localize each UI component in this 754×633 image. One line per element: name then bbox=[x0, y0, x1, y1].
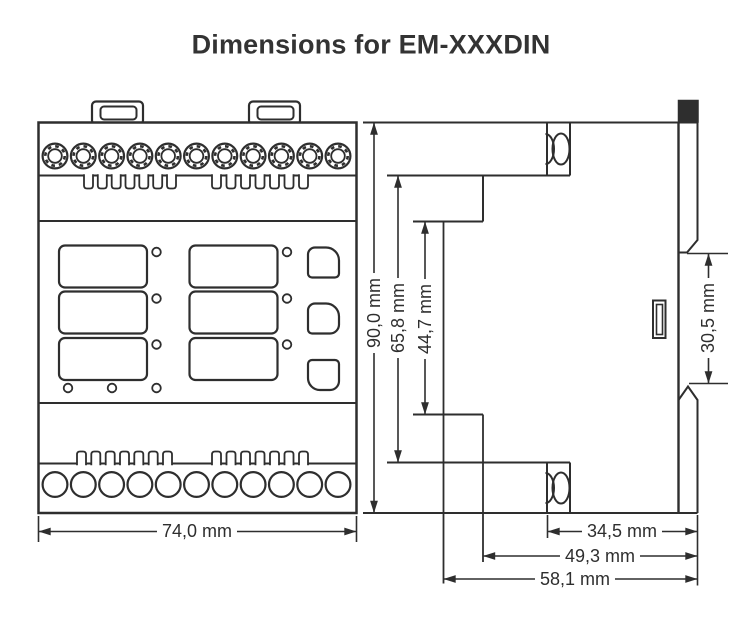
vent-slot bbox=[241, 174, 250, 188]
din-clip-handle bbox=[653, 301, 666, 339]
vent-slot bbox=[299, 452, 308, 466]
vent-slot bbox=[153, 174, 162, 188]
vent-slot bbox=[270, 174, 279, 188]
vent-slot bbox=[84, 174, 93, 188]
din-clip-stop bbox=[679, 101, 699, 123]
front-view bbox=[39, 102, 357, 543]
vent-slot bbox=[163, 452, 172, 466]
mounting-tab-slot bbox=[258, 107, 294, 120]
vent-slot bbox=[227, 452, 236, 466]
dim-label-total-height: 90,0 mm bbox=[364, 273, 384, 353]
dim-label-depth-total: 58,1 mm bbox=[535, 569, 615, 589]
dim-label-depth-step: 49,3 mm bbox=[560, 546, 640, 566]
vent-slot bbox=[256, 174, 265, 188]
vent-slot bbox=[212, 174, 221, 188]
vent-slot bbox=[285, 174, 294, 188]
dimension-drawing-page: Dimensions for EM-XXXDIN bbox=[0, 0, 754, 633]
vent-slot bbox=[139, 174, 148, 188]
vent-slot bbox=[106, 452, 115, 466]
vent-slot bbox=[98, 174, 107, 188]
dim-label-terminal-height: 65,8 mm bbox=[388, 278, 408, 358]
screw-head bbox=[553, 134, 570, 165]
dim-label-width: 74,0 mm bbox=[157, 521, 237, 541]
vent-slot bbox=[91, 452, 100, 466]
vent-slot bbox=[149, 452, 158, 466]
vent-slot bbox=[256, 452, 265, 466]
vent-slot bbox=[285, 452, 294, 466]
vent-slot bbox=[227, 174, 236, 188]
vent-slot bbox=[112, 174, 121, 188]
vent-slot bbox=[299, 174, 308, 188]
din-clip-handle-slot bbox=[657, 305, 663, 335]
din-clip-bottom bbox=[679, 387, 698, 514]
vent-slot bbox=[241, 452, 250, 466]
vent-slot bbox=[167, 174, 176, 188]
screw-head bbox=[553, 473, 570, 504]
vent-slot bbox=[126, 174, 135, 188]
vent-slot bbox=[212, 452, 221, 466]
din-clip-top bbox=[679, 123, 698, 253]
dim-label-rail-gap: 30,5 mm bbox=[698, 278, 718, 358]
vent-slot bbox=[120, 452, 129, 466]
mounting-tab-slot bbox=[101, 107, 137, 120]
vent-slot bbox=[134, 452, 143, 466]
vent-slot bbox=[77, 452, 86, 466]
vent-slot bbox=[270, 452, 279, 466]
dim-label-depth-terminal: 34,5 mm bbox=[582, 521, 662, 541]
dim-label-center-height: 44,7 mm bbox=[415, 279, 435, 359]
